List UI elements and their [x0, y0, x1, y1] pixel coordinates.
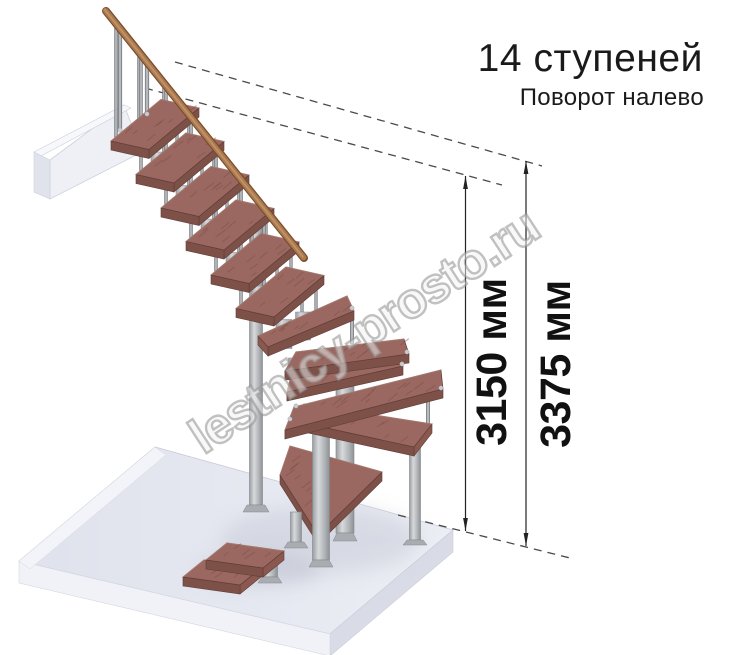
svg-text:14 ступеней: 14 ступеней [478, 37, 703, 80]
svg-text:3375 мм: 3375 мм [532, 280, 580, 448]
svg-text:Поворот налево: Поворот налево [520, 84, 704, 111]
svg-text:3150 мм: 3150 мм [468, 278, 516, 446]
